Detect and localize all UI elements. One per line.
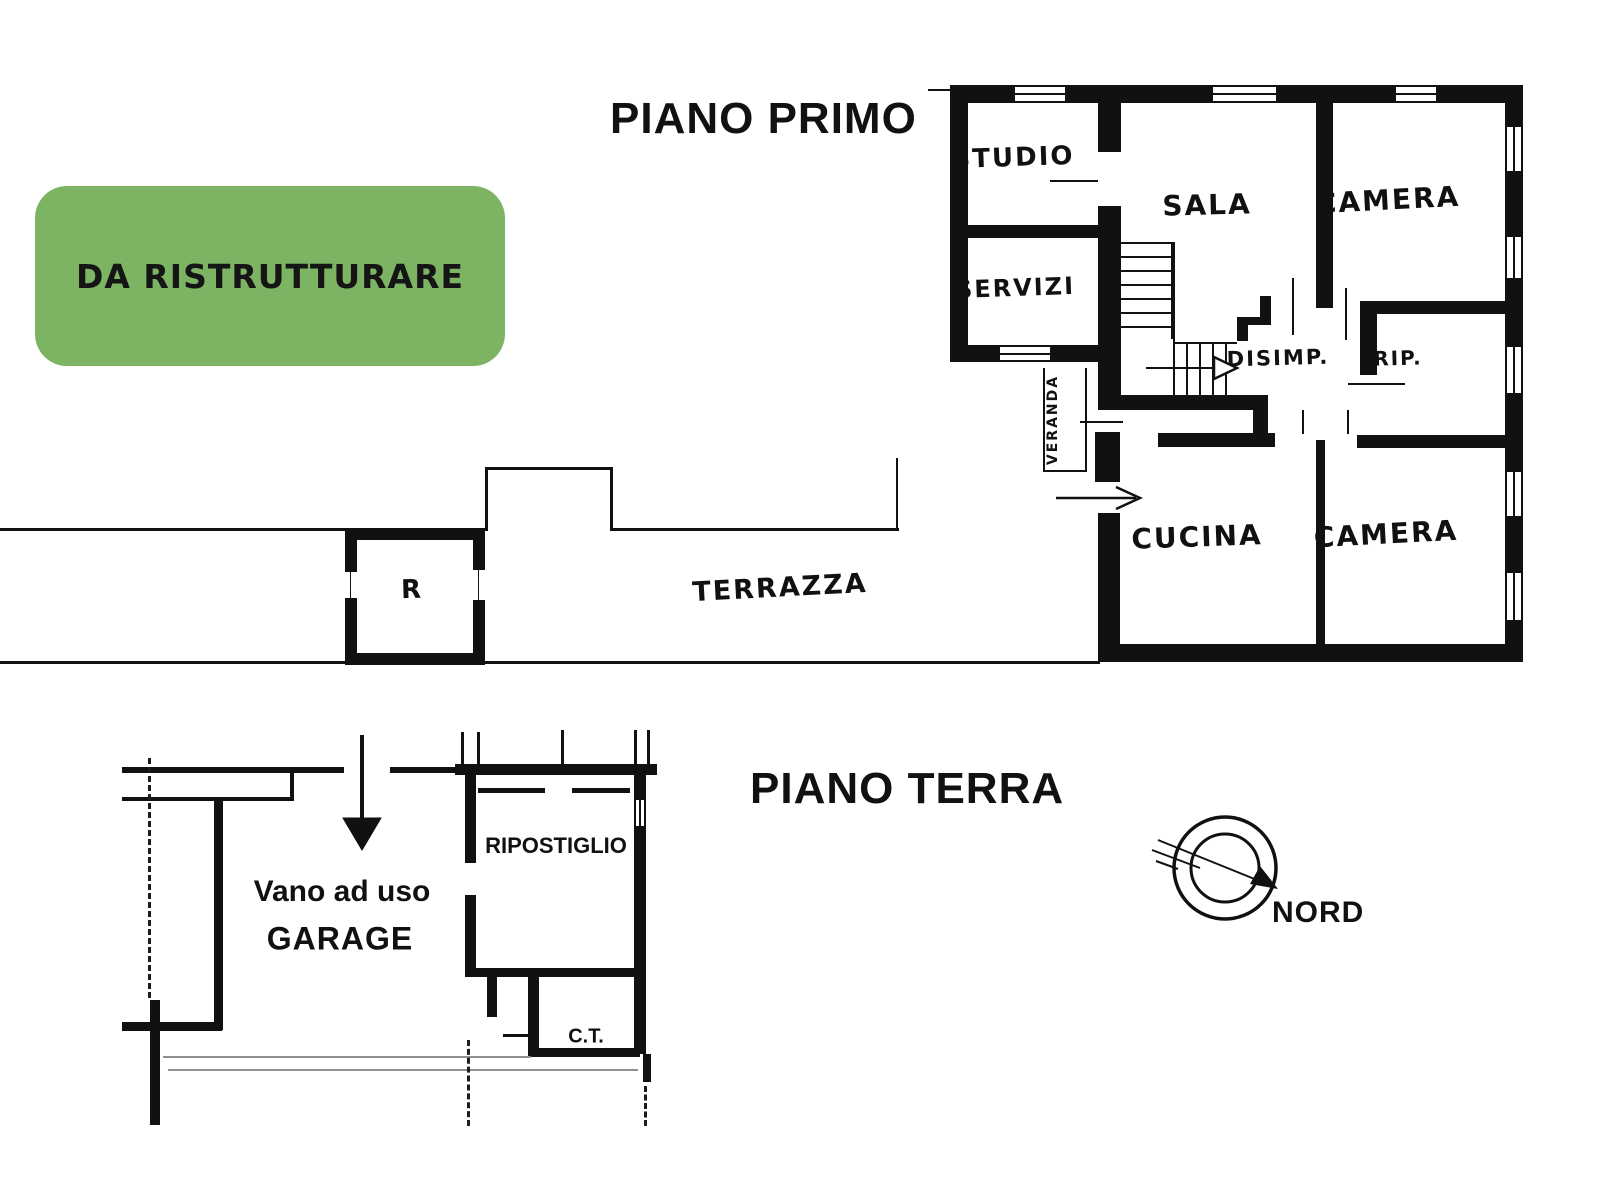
floorplan-canvas: PIANO PRIMO PIANO TERRA DA RISTRUTTURARE [0, 0, 1600, 1200]
arrows-compass-layer [0, 0, 1600, 1200]
compass-icon [1152, 817, 1278, 919]
driveway-arrow [343, 735, 381, 850]
entrance-arrow [1056, 487, 1140, 509]
stair-direction-arrow [1146, 357, 1237, 379]
